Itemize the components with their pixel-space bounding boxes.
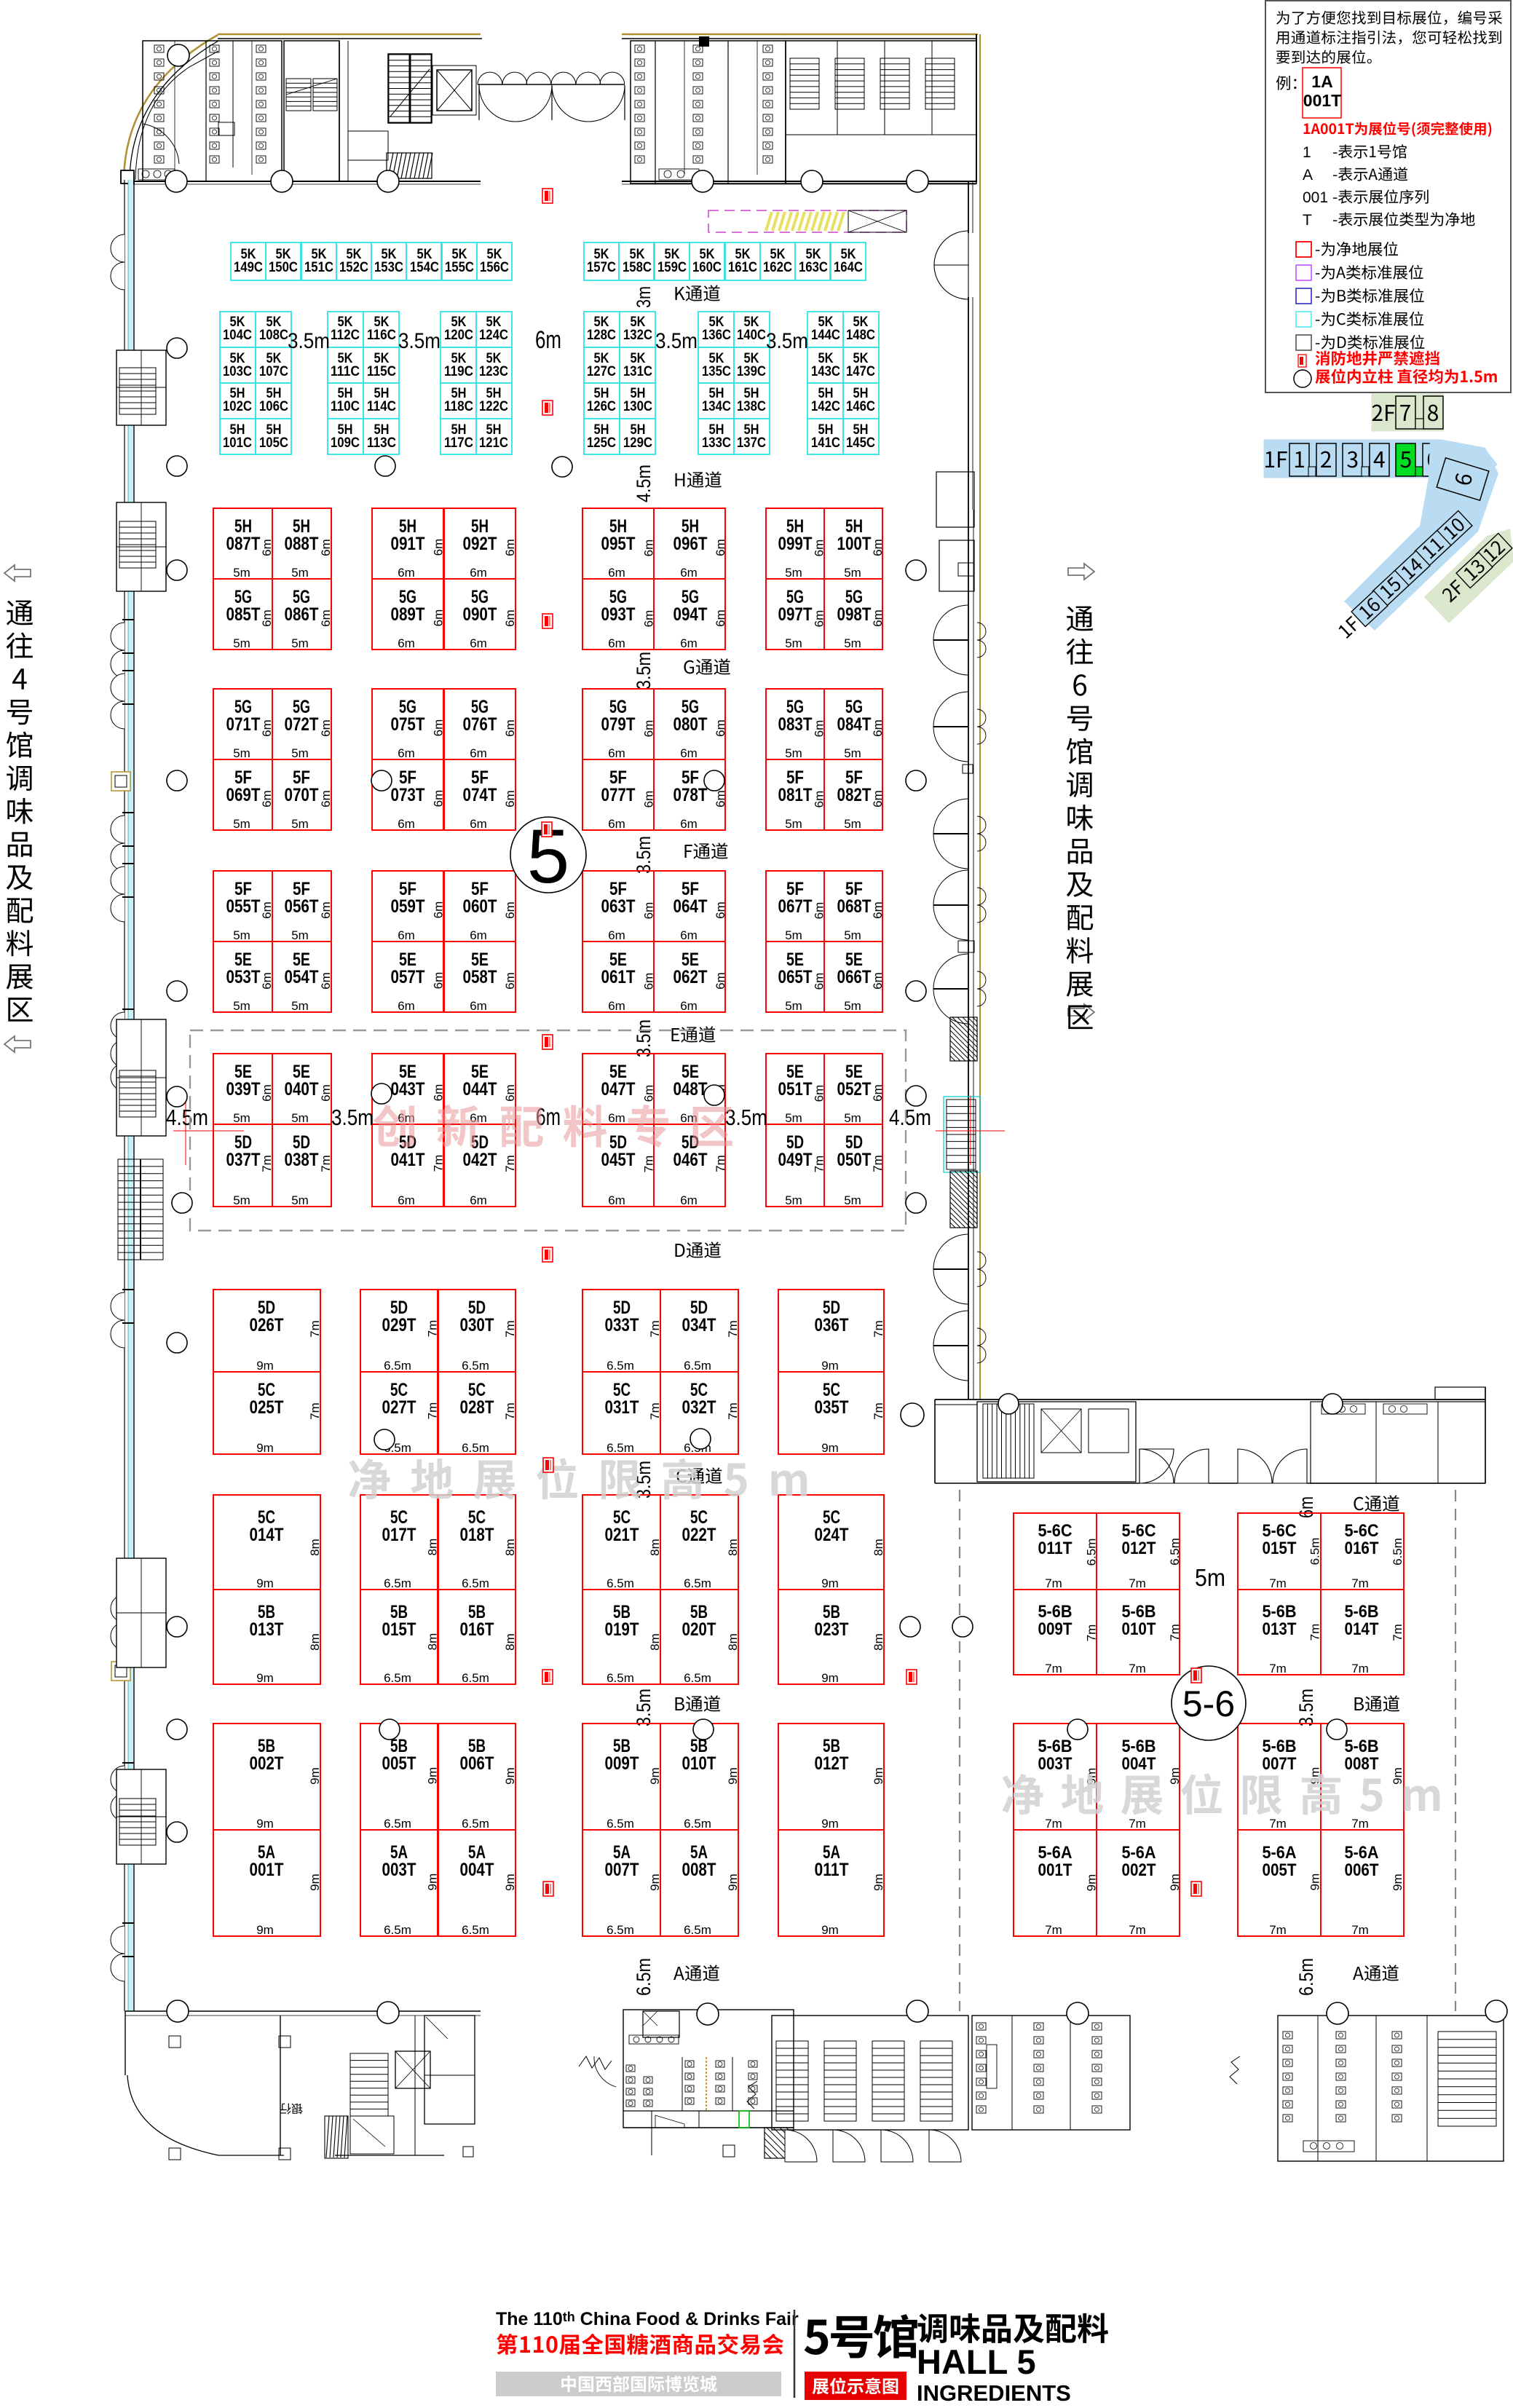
svg-text:7m: 7m bbox=[1351, 1576, 1369, 1590]
svg-text:5m: 5m bbox=[785, 566, 802, 580]
svg-text:7m: 7m bbox=[1308, 1624, 1322, 1641]
svg-text:5m: 5m bbox=[785, 817, 802, 831]
svg-text:6.5m: 6.5m bbox=[384, 1576, 411, 1590]
svg-text:6m: 6m bbox=[432, 609, 446, 627]
svg-text:153C: 153C bbox=[374, 260, 403, 275]
svg-text:3.5m: 3.5m bbox=[633, 836, 655, 874]
svg-text:9m: 9m bbox=[256, 1576, 274, 1590]
svg-text:6m: 6m bbox=[714, 609, 727, 627]
svg-text:052T: 052T bbox=[837, 1079, 872, 1100]
svg-text:118C: 118C bbox=[444, 399, 473, 414]
svg-text:9m: 9m bbox=[1168, 1767, 1182, 1785]
svg-text:012T: 012T bbox=[1122, 1539, 1156, 1558]
svg-text:6.5m: 6.5m bbox=[1308, 1538, 1322, 1566]
svg-text:039T: 039T bbox=[226, 1079, 261, 1100]
svg-text:6m: 6m bbox=[608, 817, 625, 831]
svg-text:093T: 093T bbox=[601, 604, 636, 625]
svg-text:7m: 7m bbox=[503, 1320, 517, 1338]
svg-text:155C: 155C bbox=[445, 260, 474, 275]
svg-text:002T: 002T bbox=[1122, 1860, 1156, 1880]
svg-text:6m: 6m bbox=[680, 566, 698, 580]
svg-text:6.5m: 6.5m bbox=[384, 1817, 411, 1831]
svg-text:116C: 116C bbox=[367, 328, 396, 343]
svg-text:6m: 6m bbox=[432, 719, 446, 737]
svg-text:160C: 160C bbox=[692, 260, 722, 275]
svg-text:6m: 6m bbox=[1295, 1496, 1317, 1518]
svg-text:8m: 8m bbox=[503, 1539, 517, 1556]
svg-text:098T: 098T bbox=[837, 604, 872, 625]
svg-text:5m: 5m bbox=[291, 566, 309, 580]
svg-text:141C: 141C bbox=[811, 435, 840, 451]
svg-text:084T: 084T bbox=[837, 714, 872, 735]
svg-text:066T: 066T bbox=[837, 967, 872, 987]
svg-text:029T: 029T bbox=[382, 1315, 416, 1335]
svg-text:7m: 7m bbox=[1129, 1576, 1146, 1590]
svg-text:069T: 069T bbox=[226, 785, 261, 805]
svg-text:5m: 5m bbox=[291, 928, 309, 942]
svg-text:3.5m: 3.5m bbox=[633, 652, 655, 690]
svg-text:043T: 043T bbox=[391, 1079, 425, 1100]
svg-text:8m: 8m bbox=[308, 1539, 322, 1556]
svg-text:6.5m: 6.5m bbox=[684, 1817, 711, 1831]
svg-text:6m: 6m bbox=[432, 1084, 446, 1102]
svg-text:139C: 139C bbox=[737, 364, 766, 379]
svg-text:016T: 016T bbox=[1345, 1539, 1379, 1558]
svg-text:6m: 6m bbox=[503, 790, 517, 808]
svg-text:6.5m: 6.5m bbox=[607, 1817, 634, 1831]
svg-text:045T: 045T bbox=[601, 1150, 636, 1170]
svg-text:7m: 7m bbox=[1269, 1662, 1287, 1675]
svg-text:5-6A: 5-6A bbox=[1345, 1843, 1379, 1863]
svg-text:5-6B: 5-6B bbox=[1345, 1602, 1379, 1622]
svg-text:7m: 7m bbox=[308, 1402, 322, 1420]
svg-text:9m: 9m bbox=[1308, 1874, 1322, 1891]
svg-text:6m: 6m bbox=[398, 566, 415, 580]
svg-text:017T: 017T bbox=[382, 1525, 416, 1545]
svg-text:038T: 038T bbox=[285, 1150, 319, 1170]
svg-text:005T: 005T bbox=[382, 1753, 416, 1774]
svg-text:HALL 5: HALL 5 bbox=[917, 2342, 1036, 2381]
svg-text:106C: 106C bbox=[259, 399, 288, 414]
svg-text:5m: 5m bbox=[785, 1193, 802, 1207]
svg-text:6m: 6m bbox=[319, 790, 333, 808]
svg-text:7m: 7m bbox=[426, 1320, 440, 1338]
svg-text:3.5m: 3.5m bbox=[766, 329, 808, 353]
svg-text:7m: 7m bbox=[1045, 1817, 1062, 1831]
svg-text:6m: 6m bbox=[319, 1084, 333, 1102]
svg-text:6m: 6m bbox=[398, 999, 415, 1013]
svg-text:9m: 9m bbox=[256, 1923, 274, 1937]
svg-text:8m: 8m bbox=[426, 1539, 440, 1556]
svg-text:5-6B: 5-6B bbox=[1122, 1602, 1156, 1622]
svg-text:6m: 6m bbox=[714, 901, 727, 919]
svg-text:119C: 119C bbox=[444, 364, 473, 379]
svg-text:001T: 001T bbox=[1038, 1860, 1072, 1880]
svg-text:5m: 5m bbox=[844, 746, 861, 760]
svg-text:6.5m: 6.5m bbox=[607, 1923, 634, 1937]
svg-text:015T: 015T bbox=[382, 1619, 416, 1640]
svg-text:001T: 001T bbox=[1303, 91, 1341, 110]
svg-text:143C: 143C bbox=[811, 364, 840, 379]
svg-text:The 110th China Food & Drinks: The 110th China Food & Drinks Fair bbox=[496, 2309, 799, 2329]
svg-text:5m: 5m bbox=[844, 817, 861, 831]
svg-text:5m: 5m bbox=[844, 636, 861, 650]
svg-text:123C: 123C bbox=[479, 364, 508, 379]
svg-text:112C: 112C bbox=[331, 328, 360, 343]
svg-text:6m: 6m bbox=[470, 999, 487, 1013]
svg-text:009T: 009T bbox=[605, 1753, 639, 1774]
svg-text:109C: 109C bbox=[331, 435, 360, 451]
svg-text:068T: 068T bbox=[837, 896, 872, 917]
svg-text:164C: 164C bbox=[834, 260, 863, 275]
svg-text:078T: 078T bbox=[673, 785, 708, 805]
svg-text:035T: 035T bbox=[815, 1397, 849, 1418]
svg-text:156C: 156C bbox=[480, 260, 509, 275]
svg-text:101C: 101C bbox=[223, 435, 252, 451]
svg-text:7m: 7m bbox=[1351, 1817, 1369, 1831]
svg-text:044T: 044T bbox=[463, 1079, 497, 1100]
svg-text:087T: 087T bbox=[226, 534, 261, 554]
svg-text:060T: 060T bbox=[463, 896, 497, 917]
svg-text:140C: 140C bbox=[737, 328, 766, 343]
svg-text:100T: 100T bbox=[837, 534, 872, 554]
svg-text:6m: 6m bbox=[714, 790, 727, 808]
svg-text:075T: 075T bbox=[391, 714, 425, 735]
svg-text:5-6B: 5-6B bbox=[1038, 1737, 1072, 1756]
svg-text:6.5m: 6.5m bbox=[462, 1923, 489, 1937]
svg-text:049T: 049T bbox=[778, 1150, 813, 1170]
svg-text:111C: 111C bbox=[331, 364, 360, 379]
svg-text:027T: 027T bbox=[382, 1397, 416, 1418]
svg-text:6.5m: 6.5m bbox=[684, 1923, 711, 1937]
svg-text:9m: 9m bbox=[726, 1874, 740, 1891]
svg-text:018T: 018T bbox=[460, 1525, 494, 1545]
svg-text:011T: 011T bbox=[815, 1860, 849, 1880]
svg-text:114C: 114C bbox=[367, 399, 396, 414]
svg-text:031T: 031T bbox=[605, 1397, 639, 1418]
svg-text:163C: 163C bbox=[799, 260, 828, 275]
svg-text:9m: 9m bbox=[308, 1767, 322, 1785]
svg-text:050T: 050T bbox=[837, 1150, 872, 1170]
svg-text:7m: 7m bbox=[1269, 1923, 1287, 1937]
svg-text:9m: 9m bbox=[821, 1923, 839, 1937]
svg-text:1: 1 bbox=[1303, 144, 1311, 161]
svg-text:7m: 7m bbox=[726, 1320, 740, 1338]
svg-text:023T: 023T bbox=[815, 1619, 849, 1640]
svg-text:6m: 6m bbox=[871, 901, 885, 919]
svg-text:5m: 5m bbox=[233, 999, 250, 1013]
svg-text:059T: 059T bbox=[391, 896, 425, 917]
svg-text:7m: 7m bbox=[1351, 1923, 1369, 1937]
svg-text:148C: 148C bbox=[846, 328, 875, 343]
svg-text:6m: 6m bbox=[680, 746, 698, 760]
svg-text:6m: 6m bbox=[871, 790, 885, 808]
svg-text:061T: 061T bbox=[601, 967, 636, 987]
svg-text:128C: 128C bbox=[587, 328, 616, 343]
svg-text:107C: 107C bbox=[259, 364, 288, 379]
svg-text:105C: 105C bbox=[259, 435, 288, 451]
svg-text:6m: 6m bbox=[503, 972, 517, 990]
svg-text:025T: 025T bbox=[250, 1397, 284, 1418]
svg-text:008T: 008T bbox=[1345, 1754, 1379, 1774]
svg-text:7m: 7m bbox=[1129, 1662, 1146, 1675]
svg-text:9m: 9m bbox=[872, 1874, 885, 1891]
svg-text:6m: 6m bbox=[680, 817, 698, 831]
svg-text:077T: 077T bbox=[601, 785, 636, 805]
svg-text:152C: 152C bbox=[339, 260, 368, 275]
svg-text:6.5m: 6.5m bbox=[684, 1671, 711, 1685]
svg-text:6m: 6m bbox=[503, 901, 517, 919]
svg-text:6m: 6m bbox=[319, 609, 333, 627]
svg-text:9m: 9m bbox=[821, 1817, 839, 1831]
svg-text:041T: 041T bbox=[391, 1150, 425, 1170]
svg-text:010T: 010T bbox=[1122, 1619, 1156, 1639]
svg-text:117C: 117C bbox=[444, 435, 473, 451]
svg-text:7m: 7m bbox=[503, 1402, 517, 1420]
svg-text:005T: 005T bbox=[1263, 1860, 1297, 1880]
svg-text:3.5m: 3.5m bbox=[1295, 1689, 1317, 1726]
svg-text:9m: 9m bbox=[1391, 1874, 1405, 1891]
svg-text:6.5m: 6.5m bbox=[1295, 1958, 1317, 1996]
svg-text:108C: 108C bbox=[259, 328, 288, 343]
svg-text:004T: 004T bbox=[460, 1860, 494, 1880]
svg-text:6m: 6m bbox=[398, 817, 415, 831]
svg-text:5m: 5m bbox=[844, 928, 861, 942]
svg-text:122C: 122C bbox=[479, 399, 508, 414]
svg-text:6m: 6m bbox=[470, 1193, 487, 1207]
svg-text:6m: 6m bbox=[432, 901, 446, 919]
svg-text:3.5m: 3.5m bbox=[633, 1019, 655, 1057]
svg-text:074T: 074T bbox=[463, 785, 497, 805]
svg-text:015T: 015T bbox=[1263, 1539, 1297, 1558]
svg-text:013T: 013T bbox=[250, 1619, 284, 1640]
svg-text:8m: 8m bbox=[426, 1633, 440, 1651]
svg-text:053T: 053T bbox=[226, 967, 261, 987]
svg-text:144C: 144C bbox=[811, 328, 840, 343]
svg-text:064T: 064T bbox=[673, 896, 708, 917]
svg-text:3.5m: 3.5m bbox=[288, 329, 330, 353]
svg-text:9m: 9m bbox=[872, 1767, 885, 1785]
svg-text:014T: 014T bbox=[250, 1525, 284, 1545]
svg-text:3m: 3m bbox=[633, 286, 655, 308]
svg-text:6m: 6m bbox=[714, 972, 727, 990]
svg-text:099T: 099T bbox=[778, 534, 813, 554]
svg-text:162C: 162C bbox=[763, 260, 792, 275]
svg-text:7m: 7m bbox=[1129, 1817, 1146, 1831]
svg-text:9m: 9m bbox=[821, 1441, 839, 1455]
svg-text:145C: 145C bbox=[846, 435, 875, 451]
svg-text:5m: 5m bbox=[233, 1193, 250, 1207]
svg-text:T: T bbox=[1303, 212, 1312, 229]
svg-text:6.5m: 6.5m bbox=[462, 1359, 489, 1373]
svg-text:6m: 6m bbox=[432, 539, 446, 556]
svg-text:6m: 6m bbox=[608, 636, 625, 650]
svg-text:5m: 5m bbox=[233, 746, 250, 760]
svg-text:6m: 6m bbox=[503, 539, 517, 556]
svg-text:6m: 6m bbox=[871, 539, 885, 556]
svg-text:125C: 125C bbox=[587, 435, 616, 451]
svg-text:7m: 7m bbox=[872, 1402, 885, 1420]
svg-text:103C: 103C bbox=[223, 364, 252, 379]
svg-text:1A: 1A bbox=[1311, 72, 1332, 91]
svg-text:042T: 042T bbox=[463, 1150, 497, 1170]
svg-text:040T: 040T bbox=[285, 1079, 319, 1100]
svg-text:090T: 090T bbox=[463, 604, 497, 625]
svg-text:INGREDIENTS: INGREDIENTS bbox=[917, 2380, 1071, 2406]
svg-text:6m: 6m bbox=[535, 326, 561, 354]
svg-text:067T: 067T bbox=[778, 896, 813, 917]
svg-text:5-6A: 5-6A bbox=[1038, 1843, 1072, 1863]
svg-text:7m: 7m bbox=[1351, 1662, 1369, 1675]
svg-text:5m: 5m bbox=[291, 636, 309, 650]
svg-text:5m: 5m bbox=[233, 1111, 250, 1125]
svg-text:5m: 5m bbox=[1195, 1564, 1225, 1591]
svg-text:9m: 9m bbox=[821, 1359, 839, 1373]
svg-text:6.5m: 6.5m bbox=[633, 1958, 655, 1996]
svg-text:127C: 127C bbox=[587, 364, 616, 379]
svg-text:080T: 080T bbox=[673, 714, 708, 735]
svg-text:086T: 086T bbox=[285, 604, 319, 625]
svg-text:073T: 073T bbox=[391, 785, 425, 805]
svg-text:158C: 158C bbox=[623, 260, 652, 275]
svg-text:6m: 6m bbox=[680, 636, 698, 650]
svg-text:002T: 002T bbox=[250, 1753, 284, 1774]
svg-text:5m: 5m bbox=[233, 928, 250, 942]
svg-text:024T: 024T bbox=[815, 1525, 849, 1545]
svg-text:6m: 6m bbox=[608, 566, 625, 580]
svg-text:058T: 058T bbox=[463, 967, 497, 987]
svg-text:6.5m: 6.5m bbox=[384, 1923, 411, 1937]
svg-text:079T: 079T bbox=[601, 714, 636, 735]
svg-text:6.5m: 6.5m bbox=[462, 1671, 489, 1685]
svg-text:9m: 9m bbox=[1168, 1874, 1182, 1891]
svg-text:9m: 9m bbox=[821, 1576, 839, 1590]
svg-text:6m: 6m bbox=[871, 719, 885, 737]
svg-text:092T: 092T bbox=[463, 534, 497, 554]
svg-text:076T: 076T bbox=[463, 714, 497, 735]
svg-text:057T: 057T bbox=[391, 967, 425, 987]
svg-text:6.5m: 6.5m bbox=[462, 1576, 489, 1590]
svg-text:5-6B: 5-6B bbox=[1263, 1602, 1297, 1622]
svg-text:062T: 062T bbox=[673, 967, 708, 987]
svg-text:5m: 5m bbox=[233, 636, 250, 650]
svg-text:4.5m: 4.5m bbox=[166, 1105, 208, 1130]
svg-text:150C: 150C bbox=[269, 260, 298, 275]
svg-text:096T: 096T bbox=[673, 534, 708, 554]
svg-text:020T: 020T bbox=[682, 1619, 716, 1640]
svg-text:001T: 001T bbox=[250, 1860, 284, 1880]
svg-text:5-6A: 5-6A bbox=[1122, 1843, 1156, 1863]
svg-text:082T: 082T bbox=[837, 785, 872, 805]
svg-text:6.5m: 6.5m bbox=[607, 1359, 634, 1373]
svg-text:6.5m: 6.5m bbox=[1168, 1538, 1182, 1566]
svg-text:159C: 159C bbox=[657, 260, 687, 275]
svg-text:7m: 7m bbox=[1129, 1923, 1146, 1937]
svg-text:147C: 147C bbox=[846, 364, 875, 379]
svg-text:056T: 056T bbox=[285, 896, 319, 917]
svg-text:8m: 8m bbox=[872, 1633, 885, 1651]
svg-text:113C: 113C bbox=[367, 435, 396, 451]
svg-text:8m: 8m bbox=[872, 1539, 885, 1556]
svg-text:126C: 126C bbox=[587, 399, 616, 414]
svg-text:030T: 030T bbox=[460, 1315, 494, 1335]
svg-text:5m: 5m bbox=[844, 999, 861, 1013]
svg-text:7m: 7m bbox=[872, 1320, 885, 1338]
svg-text:5m: 5m bbox=[291, 1111, 309, 1125]
svg-text:065T: 065T bbox=[778, 967, 813, 987]
svg-text:6m: 6m bbox=[680, 1193, 698, 1207]
svg-text:5m: 5m bbox=[233, 566, 250, 580]
svg-text:9m: 9m bbox=[726, 1767, 740, 1785]
svg-text:6m: 6m bbox=[714, 539, 727, 556]
svg-text:6m: 6m bbox=[398, 928, 415, 942]
svg-text:6.5m: 6.5m bbox=[684, 1359, 711, 1373]
svg-text:A: A bbox=[1303, 167, 1313, 183]
svg-text:5m: 5m bbox=[291, 817, 309, 831]
svg-text:6m: 6m bbox=[608, 1111, 625, 1125]
svg-text:6.5m: 6.5m bbox=[384, 1671, 411, 1685]
svg-text:7m: 7m bbox=[714, 1155, 727, 1172]
svg-text:6m: 6m bbox=[319, 719, 333, 737]
svg-text:021T: 021T bbox=[605, 1525, 639, 1545]
svg-text:7m: 7m bbox=[503, 1155, 517, 1172]
svg-text:6m: 6m bbox=[608, 1193, 625, 1207]
svg-text:007T: 007T bbox=[1263, 1754, 1297, 1774]
svg-text:5-6B: 5-6B bbox=[1122, 1737, 1156, 1756]
svg-text:4.5m: 4.5m bbox=[889, 1105, 931, 1130]
svg-text:7m: 7m bbox=[1269, 1576, 1287, 1590]
svg-text:055T: 055T bbox=[226, 896, 261, 917]
svg-text:6.5m: 6.5m bbox=[462, 1817, 489, 1831]
svg-text:133C: 133C bbox=[702, 435, 731, 451]
svg-text:5m: 5m bbox=[291, 746, 309, 760]
svg-text:6m: 6m bbox=[319, 539, 333, 556]
svg-text:7m: 7m bbox=[1391, 1624, 1405, 1641]
svg-text:5-6: 5-6 bbox=[1182, 1683, 1235, 1724]
svg-text:085T: 085T bbox=[226, 604, 261, 625]
svg-text:094T: 094T bbox=[673, 604, 708, 625]
svg-text:033T: 033T bbox=[605, 1315, 639, 1335]
svg-text:6.5m: 6.5m bbox=[607, 1576, 634, 1590]
svg-text:010T: 010T bbox=[682, 1753, 716, 1774]
svg-text:5m: 5m bbox=[291, 1193, 309, 1207]
svg-text:7m: 7m bbox=[726, 1402, 740, 1420]
svg-text:6m: 6m bbox=[871, 609, 885, 627]
svg-text:4.5m: 4.5m bbox=[633, 465, 655, 502]
svg-text:5m: 5m bbox=[785, 928, 802, 942]
svg-text:5m: 5m bbox=[785, 1111, 802, 1125]
svg-text:8m: 8m bbox=[726, 1539, 740, 1556]
svg-text:012T: 012T bbox=[815, 1753, 849, 1774]
svg-text:102C: 102C bbox=[223, 399, 252, 414]
svg-text:022T: 022T bbox=[682, 1525, 716, 1545]
svg-text:011T: 011T bbox=[1038, 1539, 1072, 1558]
svg-text:157C: 157C bbox=[587, 260, 616, 275]
svg-text:028T: 028T bbox=[460, 1397, 494, 1418]
svg-text:072T: 072T bbox=[285, 714, 319, 735]
svg-text:6m: 6m bbox=[470, 636, 487, 650]
svg-text:110C: 110C bbox=[331, 399, 360, 414]
svg-text:5-6C: 5-6C bbox=[1038, 1521, 1072, 1541]
svg-text:6m: 6m bbox=[714, 719, 727, 737]
svg-text:006T: 006T bbox=[1345, 1860, 1379, 1880]
svg-text:037T: 037T bbox=[226, 1150, 261, 1170]
svg-text:5m: 5m bbox=[785, 636, 802, 650]
svg-text:007T: 007T bbox=[605, 1860, 639, 1880]
svg-text:9m: 9m bbox=[256, 1359, 274, 1373]
svg-text:3.5m: 3.5m bbox=[725, 1105, 767, 1130]
svg-text:161C: 161C bbox=[728, 260, 757, 275]
